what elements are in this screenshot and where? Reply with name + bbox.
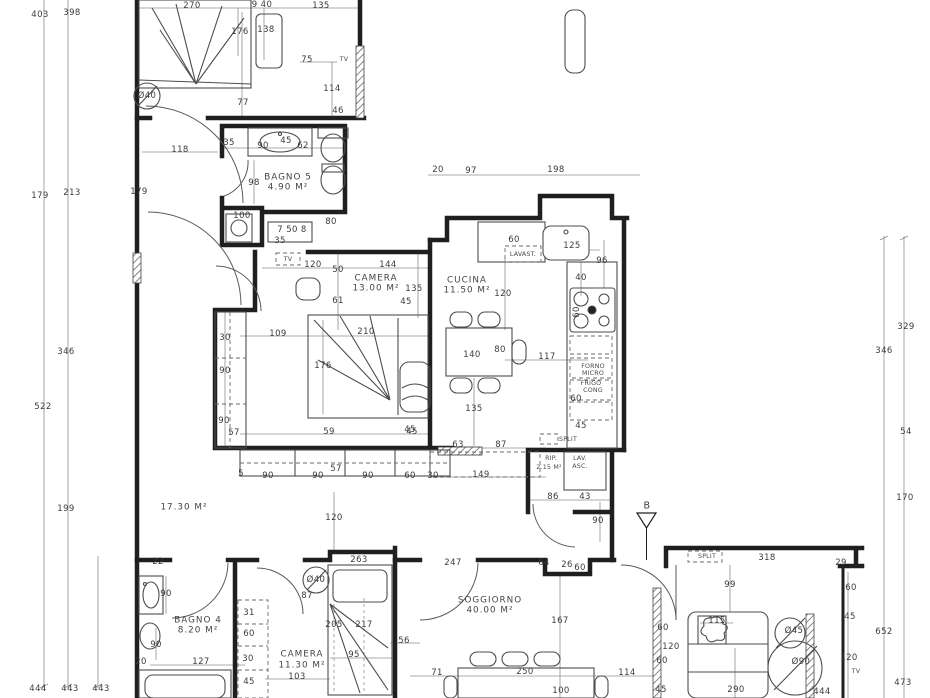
bidet-icon <box>321 164 345 194</box>
dining-table-icon <box>444 652 608 698</box>
cabinet-icon <box>570 402 612 420</box>
window-icon <box>356 46 364 118</box>
doors <box>146 106 676 620</box>
vanity-icon <box>248 128 312 156</box>
toilet-icon <box>140 623 160 649</box>
plant-icon <box>698 616 727 644</box>
lift-icon <box>564 452 606 490</box>
split-unit-icon <box>688 551 722 562</box>
oven-icon <box>570 358 612 378</box>
round-table-small-icon <box>775 618 805 648</box>
door-arc <box>621 565 676 620</box>
window-icon <box>653 588 661 698</box>
dimension-lines <box>40 0 908 698</box>
dishwasher-icon <box>505 246 541 262</box>
door-arc <box>172 563 228 618</box>
floor-plan-canvas: 4033981792133465221994444434432709 40135… <box>0 0 930 698</box>
worktop-icon <box>570 336 612 354</box>
washing-machine-icon <box>226 214 252 242</box>
washbasin-icon <box>139 576 163 614</box>
tv-unit-icon <box>276 253 300 265</box>
closet-icon <box>238 600 268 698</box>
kitchen-table-icon <box>446 312 526 393</box>
armchair-icon <box>400 362 430 412</box>
nightstand-icon <box>256 14 282 68</box>
hob-icon <box>570 288 615 332</box>
cabinet-icon <box>268 222 312 242</box>
door-arc <box>257 568 303 614</box>
bed-icon <box>308 315 428 418</box>
duct-icon <box>565 10 585 73</box>
bed-icon <box>139 0 251 88</box>
column-icon <box>303 567 329 593</box>
radiator-icon <box>438 447 482 455</box>
door-arc <box>148 212 241 305</box>
door-arc <box>533 504 575 547</box>
bed-icon <box>328 565 392 695</box>
stool-icon <box>296 278 320 300</box>
door-arc <box>420 563 478 620</box>
split-unit-icon <box>540 434 558 444</box>
closet-icon <box>430 452 540 477</box>
closet-icon <box>240 450 450 476</box>
floor-plan-drawing <box>0 0 930 698</box>
bathtub-icon <box>139 670 231 698</box>
window-icon <box>133 253 141 283</box>
sink-icon <box>478 222 589 262</box>
wardrobe-icon <box>215 312 246 448</box>
kitchen-counter-icon <box>567 262 617 448</box>
door-arc <box>224 160 248 196</box>
fridge-icon <box>570 380 612 400</box>
sofa-icon <box>688 612 768 698</box>
door-arc <box>146 106 243 203</box>
section-marker-b <box>637 513 656 560</box>
